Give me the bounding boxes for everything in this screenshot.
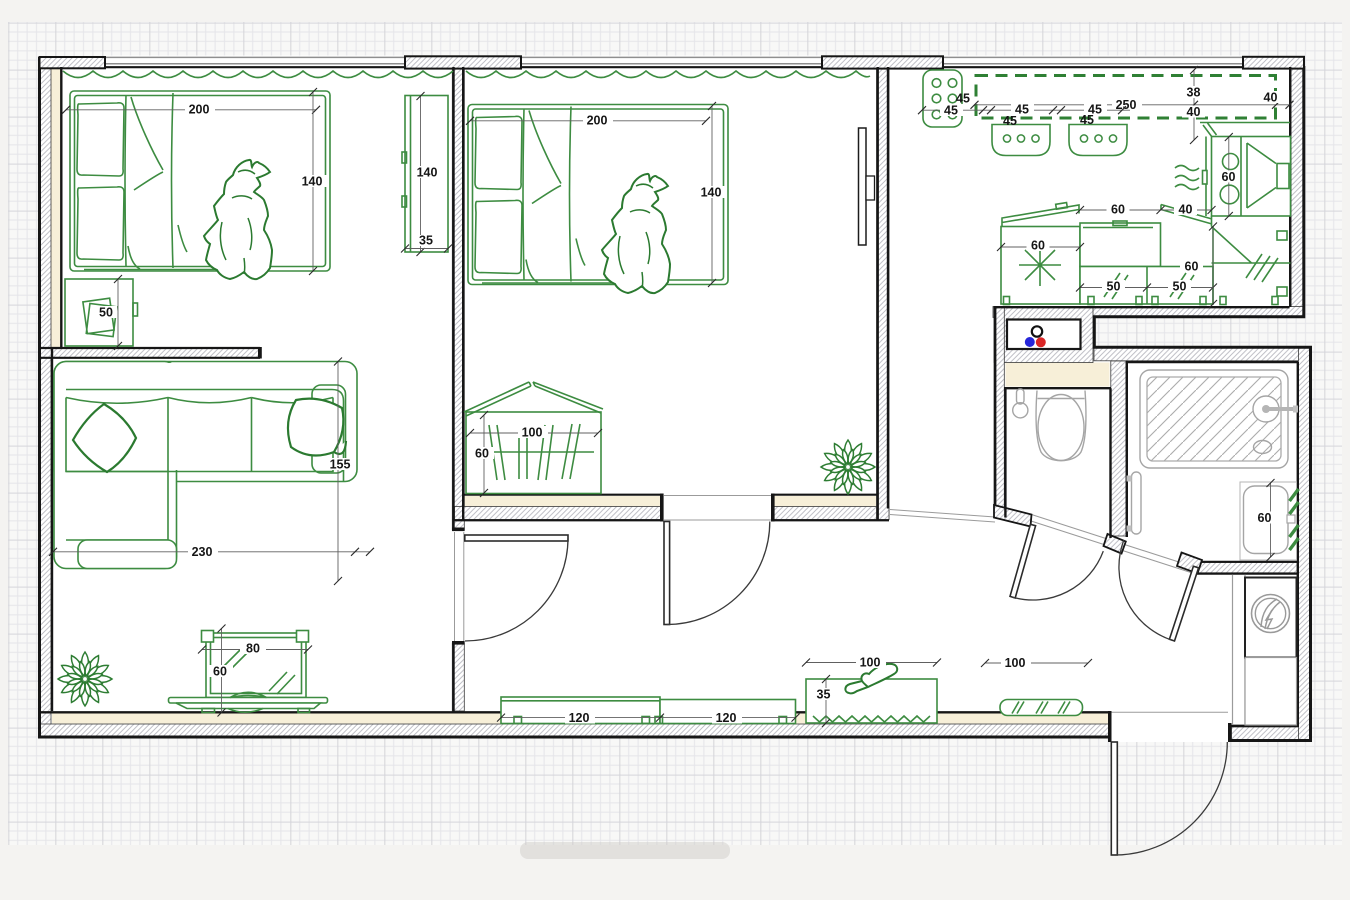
svg-text:80: 80: [246, 642, 260, 656]
svg-text:140: 140: [417, 166, 438, 180]
svg-text:45: 45: [1015, 103, 1029, 117]
svg-text:35: 35: [419, 234, 433, 248]
svg-text:200: 200: [587, 114, 608, 128]
svg-text:40: 40: [1264, 91, 1278, 105]
svg-text:60: 60: [1031, 239, 1045, 253]
svg-text:60: 60: [1185, 260, 1199, 274]
svg-text:200: 200: [189, 103, 210, 117]
svg-text:140: 140: [701, 186, 722, 200]
svg-text:50: 50: [1173, 280, 1187, 294]
svg-text:230: 230: [192, 545, 213, 559]
svg-text:60: 60: [1111, 203, 1125, 217]
svg-text:50: 50: [1107, 280, 1121, 294]
svg-text:50: 50: [99, 306, 113, 320]
svg-text:60: 60: [1258, 511, 1272, 525]
svg-text:45: 45: [1080, 113, 1094, 127]
svg-text:40: 40: [1187, 105, 1201, 119]
svg-text:120: 120: [716, 711, 737, 725]
svg-text:60: 60: [213, 665, 227, 679]
svg-text:100: 100: [522, 426, 543, 440]
svg-text:38: 38: [1187, 86, 1201, 100]
svg-text:155: 155: [330, 458, 351, 472]
svg-text:60: 60: [475, 447, 489, 461]
svg-text:35: 35: [817, 688, 831, 702]
svg-text:120: 120: [569, 711, 590, 725]
svg-text:45: 45: [956, 92, 970, 106]
svg-text:140: 140: [302, 175, 323, 189]
svg-text:100: 100: [1005, 656, 1026, 670]
svg-text:40: 40: [1179, 203, 1193, 217]
svg-text:100: 100: [860, 656, 881, 670]
svg-text:45: 45: [1003, 114, 1017, 128]
svg-text:45: 45: [944, 104, 958, 118]
svg-text:60: 60: [1222, 170, 1236, 184]
